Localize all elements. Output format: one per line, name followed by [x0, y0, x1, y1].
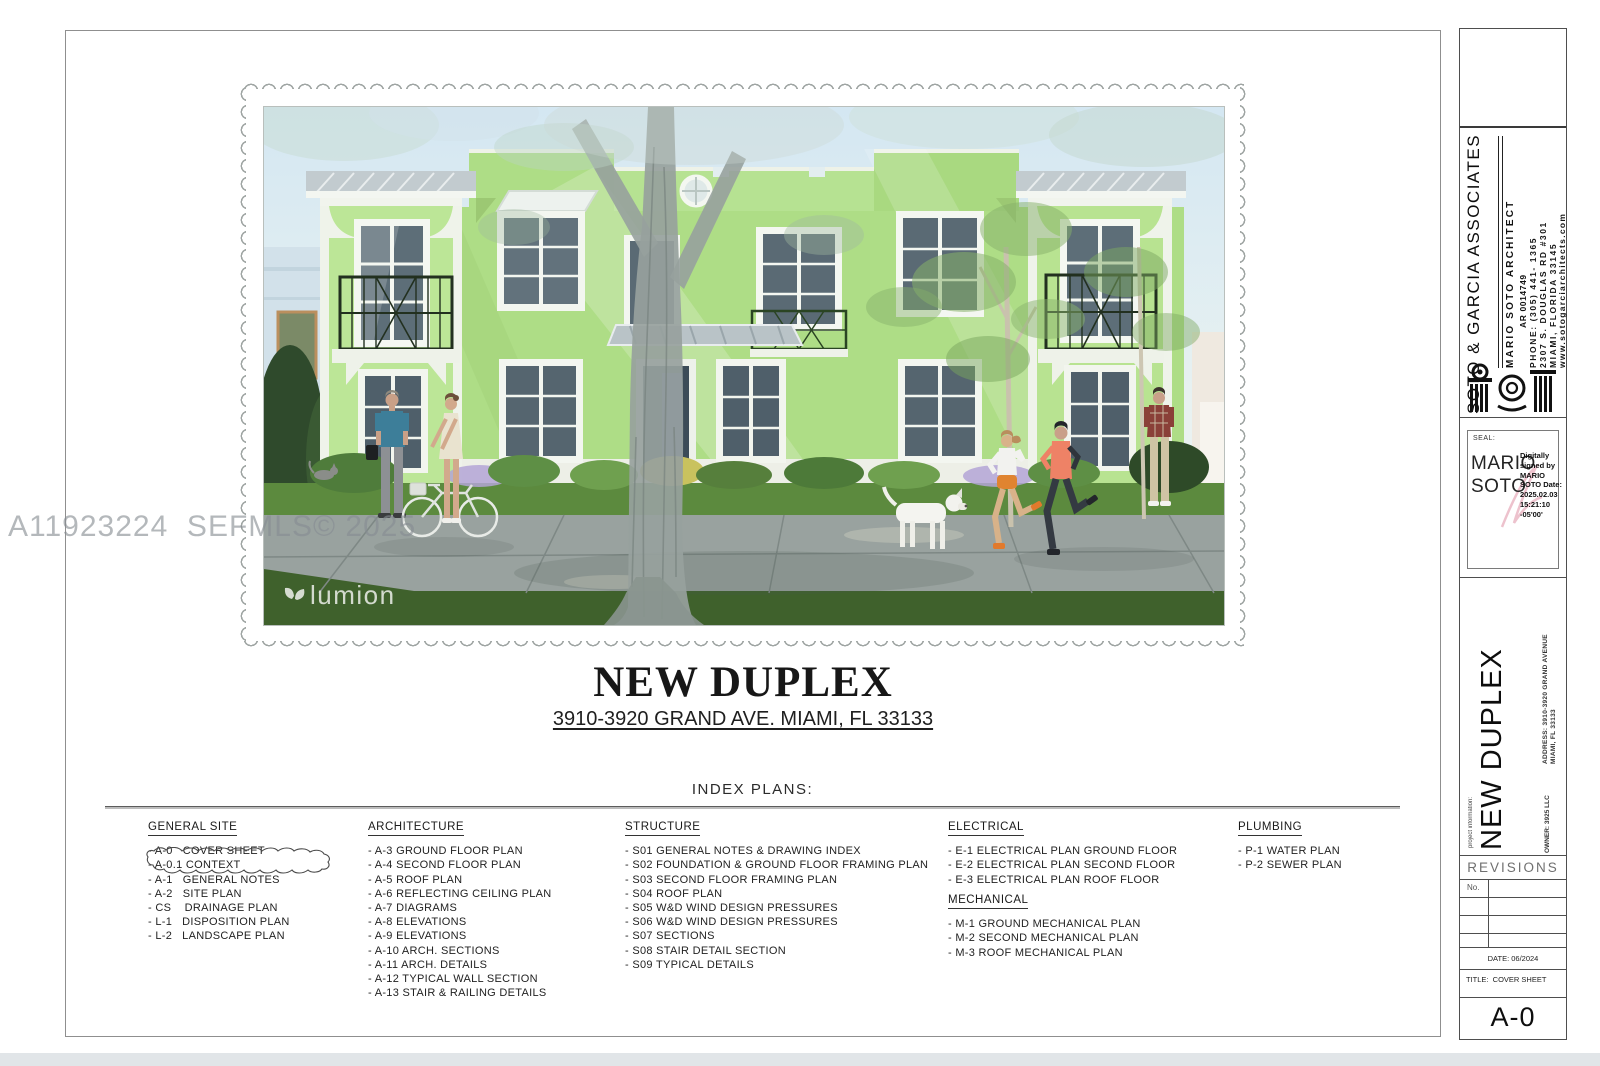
index-column-header: ELECTRICAL — [948, 820, 1024, 836]
index-item: - A-8 ELEVATIONS — [368, 915, 552, 929]
project-info-section: ADDRESS: 3910-3920 GRAND AVENUE MIAMI, F… — [1460, 578, 1566, 856]
index-column-header: MECHANICAL — [948, 893, 1028, 909]
date-bar: DATE: 06/2024 — [1460, 948, 1566, 970]
mls-watermark: A11923224 SEFMLS© 2025 — [8, 510, 416, 544]
architect-name: MARIO SOTO ARCHITECT — [1505, 136, 1517, 368]
index-item: - E-2 ELECTRICAL PLAN SECOND FLOOR — [948, 858, 1177, 872]
index-item: - S04 ROOF PLAN — [625, 887, 928, 901]
index-item: - A-4 SECOND FLOOR PLAN — [368, 858, 552, 872]
index-item: - S09 TYPICAL DETAILS — [625, 958, 928, 972]
revisions-section: REVISIONS No. — [1460, 856, 1566, 948]
index-column-general-site: GENERAL SITE - A-0 COVER SHEET - A-0.1 C… — [148, 820, 290, 944]
sheet-number: A-0 — [1460, 998, 1566, 1037]
seal-section: SEAL: MARIO SOTO Digitally signed by MAR… — [1460, 418, 1566, 578]
revision-row — [1460, 898, 1566, 916]
scallop-edge-right — [1240, 85, 1249, 645]
duplex-rendering: lumion — [263, 106, 1225, 626]
revisions-header: REVISIONS — [1460, 856, 1566, 880]
index-item: - P-1 WATER PLAN — [1238, 844, 1342, 858]
index-item: - A-7 DIAGRAMS — [368, 901, 552, 915]
index-item: - S03 SECOND FLOOR FRAMING PLAN — [625, 873, 928, 887]
index-item: - A-11 ARCH. DETAILS — [368, 958, 552, 972]
project-address: 3910-3920 GRAND AVE. MIAMI, FL 33133 — [237, 708, 1249, 731]
project-info-label: project information: — [1468, 728, 1476, 848]
revision-row: No. — [1460, 880, 1566, 898]
firm-divider — [1498, 136, 1503, 368]
architectural-cover-sheet: { "watermark": "A11923224 SEFMLS© 2025",… — [0, 0, 1600, 1066]
index-item: - S06 W&D WIND DESIGN PRESSURES — [625, 915, 928, 929]
index-plans-heading: INDEX PLANS: — [105, 781, 1400, 798]
index-item: - A-6 REFLECTING CEILING PLAN — [368, 887, 552, 901]
lumion-logo-text: lumion — [310, 580, 396, 610]
index-column-mechanical: MECHANICAL - M-1 GROUND MECHANICAL PLAN … — [948, 893, 1141, 960]
revision-no-label: No. — [1467, 883, 1479, 892]
title-block-empty-box — [1460, 29, 1566, 128]
index-item: - A-13 STAIR & RAILING DETAILS — [368, 986, 552, 1000]
firm-phone: PHONE: (305) 441- 1365 — [1528, 136, 1538, 368]
scan-edge — [0, 1053, 1600, 1066]
scallop-edge-left — [237, 85, 246, 645]
index-column-structure: STRUCTURE - S01 GENERAL NOTES & DRAWING … — [625, 820, 928, 972]
project-title: NEW DUPLEX — [237, 658, 1249, 707]
index-column-header: PLUMBING — [1238, 820, 1302, 836]
index-item: - E-3 ELECTRICAL PLAN ROOF FLOOR — [948, 873, 1177, 887]
index-item: - M-3 ROOF MECHANICAL PLAN — [948, 946, 1141, 960]
rendering-svg: lumion — [264, 107, 1224, 625]
title-block-sidebar: SOTO & GARCIA ASSOCIATES MARIO SOTO ARCH… — [1459, 28, 1567, 1040]
index-item: - M-2 SECOND MECHANICAL PLAN — [948, 931, 1141, 945]
index-item: - S01 GENERAL NOTES & DRAWING INDEX — [625, 844, 928, 858]
firm-block: SOTO & GARCIA ASSOCIATES MARIO SOTO ARCH… — [1460, 128, 1566, 418]
index-item: - S08 STAIR DETAIL SECTION — [625, 944, 928, 958]
firm-street: 2307 S. DOUGLAS RD #301 — [1538, 136, 1548, 368]
digital-signature: Digitally signed by MARIO SOTO Date: 202… — [1520, 451, 1564, 519]
index-column-electrical: ELECTRICAL - E-1 ELECTRICAL PLAN GROUND … — [948, 820, 1177, 887]
index-column-plumbing: PLUMBING - P-1 WATER PLAN - P-2 SEWER PL… — [1238, 820, 1342, 873]
project-owner: OWNER: 3925 LLC — [1544, 763, 1553, 853]
architect-license: AR 0014749 — [1518, 168, 1528, 328]
index-column-header: ARCHITECTURE — [368, 820, 464, 836]
sheet-title-bar: TITLE: COVER SHEET — [1460, 970, 1566, 998]
index-item: - P-2 SEWER PLAN — [1238, 858, 1342, 872]
index-item: - A-3 GROUND FLOOR PLAN — [368, 844, 552, 858]
index-item: - M-1 GROUND MECHANICAL PLAN — [948, 917, 1141, 931]
index-item: - S07 SECTIONS — [625, 929, 928, 943]
index-column-header: GENERAL SITE — [148, 820, 237, 836]
index-item: - A-5 ROOF PLAN — [368, 873, 552, 887]
index-item: - A-9 ELEVATIONS — [368, 929, 552, 943]
scallop-edge-top — [242, 80, 1244, 89]
index-item: - A-12 TYPICAL WALL SECTION — [368, 972, 552, 986]
revision-row — [1460, 916, 1566, 934]
seal-box: SEAL: MARIO SOTO Digitally signed by MAR… — [1467, 430, 1559, 569]
index-column-architecture: ARCHITECTURE - A-3 GROUND FLOOR PLAN - A… — [368, 820, 552, 1000]
index-item: - L-1 DISPOSITION PLAN — [148, 915, 290, 929]
scallop-edge-bottom — [242, 641, 1244, 650]
column-capital-logo — [1468, 362, 1556, 414]
index-item: - L-2 LANDSCAPE PLAN — [148, 929, 290, 943]
rendering-frame: lumion — [237, 80, 1249, 650]
firm-website: www.sotogarciarchitects.com — [1557, 136, 1567, 368]
index-item: - S05 W&D WIND DESIGN PRESSURES — [625, 901, 928, 915]
index-item: - A-2 SITE PLAN — [148, 887, 290, 901]
index-item: - E-1 ELECTRICAL PLAN GROUND FLOOR — [948, 844, 1177, 858]
project-address-line2: MIAMI, FL 33133 — [1550, 584, 1559, 764]
index-item: - S02 FOUNDATION & GROUND FLOOR FRAMING … — [625, 858, 928, 872]
index-rule — [105, 806, 1400, 809]
index-column-header: STRUCTURE — [625, 820, 700, 836]
index-item: - CS DRAINAGE PLAN — [148, 901, 290, 915]
seal-label: SEAL: — [1473, 435, 1495, 442]
index-item: - A-10 ARCH. SECTIONS — [368, 944, 552, 958]
revision-cloud — [136, 847, 341, 875]
project-name-vertical: NEW DUPLEX — [1476, 636, 1516, 850]
